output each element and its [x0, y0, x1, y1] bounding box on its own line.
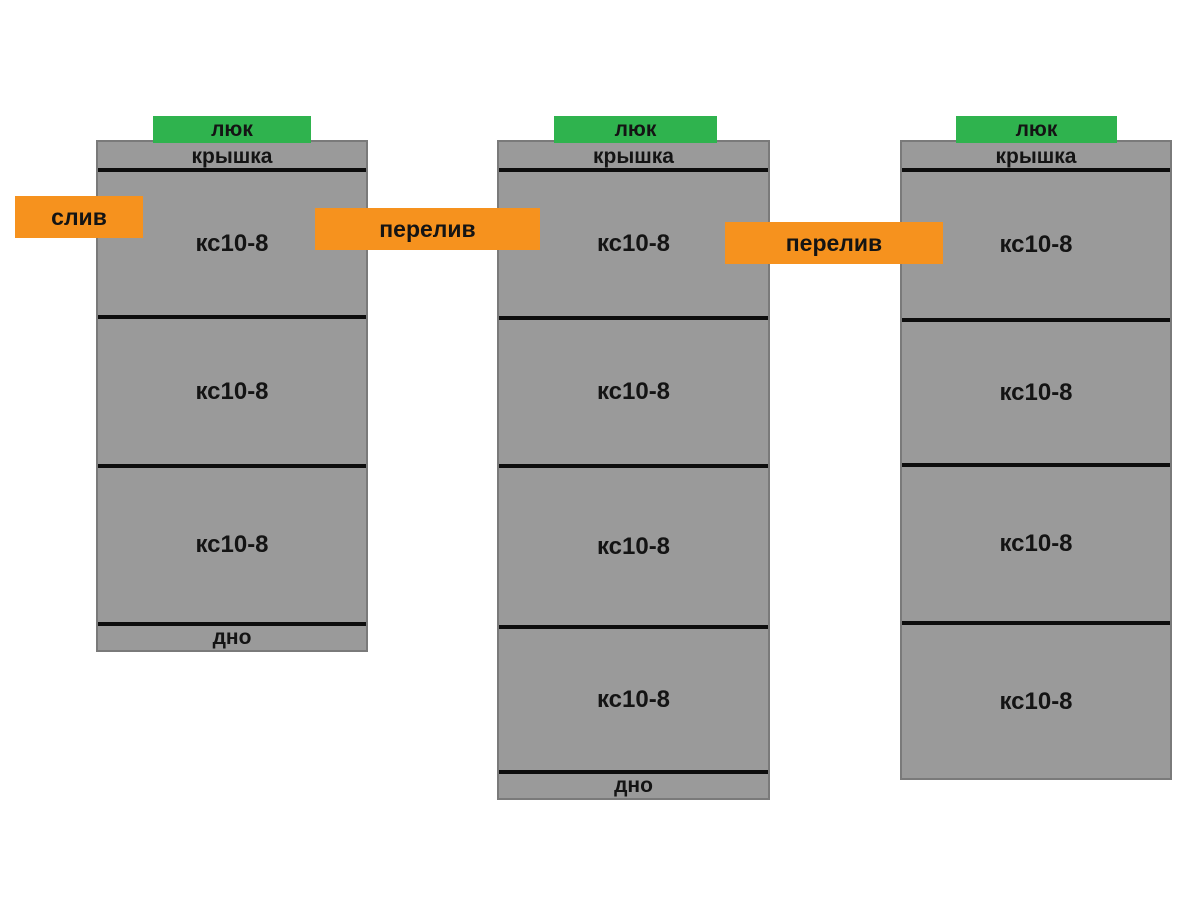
- well-1-bottom: дно: [98, 626, 366, 650]
- well-1-ring-3: кс10-8: [98, 468, 366, 626]
- well-1-lid: крышка: [98, 142, 366, 172]
- well-1-ring-2: кс10-8: [98, 319, 366, 468]
- overflow-label-2: перелив: [725, 222, 943, 264]
- well-3-ring-4: кс10-8: [902, 625, 1170, 778]
- manhole-hatch-2: люк: [554, 116, 717, 143]
- well-2-ring-3: кс10-8: [499, 468, 768, 629]
- well-2-bottom: дно: [499, 774, 768, 798]
- well-2-ring-2: кс10-8: [499, 320, 768, 468]
- well-3-ring-3: кс10-8: [902, 467, 1170, 625]
- well-2-lid: крышка: [499, 142, 768, 172]
- well-2-ring-4: кс10-8: [499, 629, 768, 774]
- septic-well-diagram: люк люк люк крышка кс10-8 кс10-8 кс10-8 …: [0, 0, 1200, 900]
- well-3-lid: крышка: [902, 142, 1170, 172]
- manhole-hatch-3: люк: [956, 116, 1117, 143]
- well-3-ring-2: кс10-8: [902, 322, 1170, 467]
- drain-label: слив: [15, 196, 143, 238]
- overflow-label-1: перелив: [315, 208, 540, 250]
- manhole-hatch-1: люк: [153, 116, 311, 143]
